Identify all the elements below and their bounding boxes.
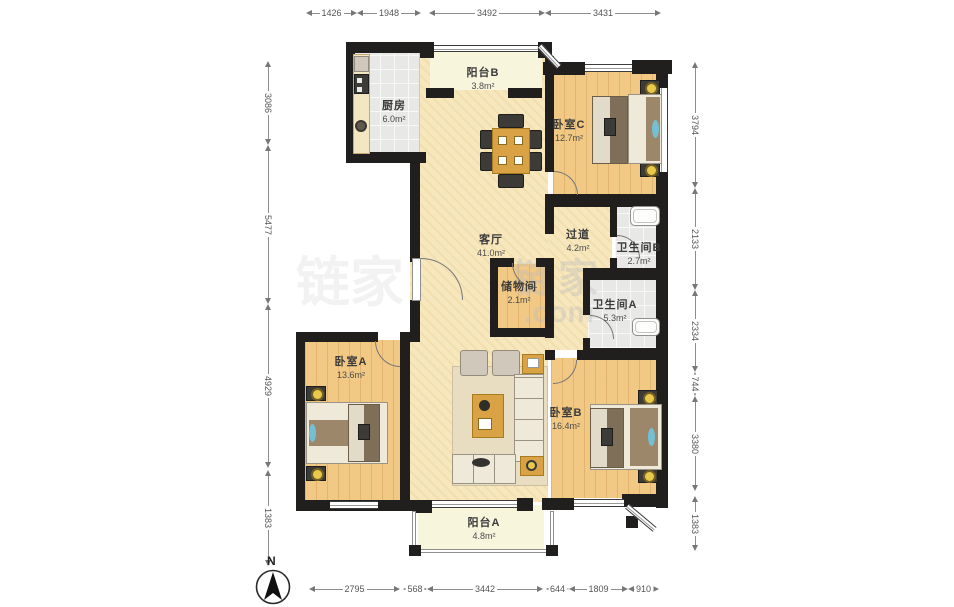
dimension-segment: 3431 [545, 8, 661, 18]
dimension-segment: 3086 [263, 61, 273, 145]
dimension-value: 3086 [263, 91, 273, 115]
dimension-value: 3442 [473, 584, 497, 594]
dimension-value: 3431 [591, 8, 615, 18]
dimension-value: 644 [548, 584, 567, 594]
dimension-value: 1809 [586, 584, 610, 594]
dimension-segment: 910 [628, 584, 659, 594]
dimension-segment: 5477 [263, 145, 273, 304]
dimension-segment: 1809 [569, 584, 628, 594]
dimensions-layer: 1426194834923431279556834426441809910308… [0, 0, 954, 607]
dimension-value: 3380 [690, 431, 700, 455]
dimension-segment: 1948 [357, 8, 421, 18]
dimension-value: 1948 [377, 8, 401, 18]
dimension-segment: 3380 [690, 396, 700, 491]
dimension-segment: 2795 [309, 584, 400, 594]
dimension-value: 2795 [342, 584, 366, 594]
dimension-segment: 1383 [263, 470, 273, 566]
dimension-value: 4929 [263, 374, 273, 398]
dimension-value: 2133 [690, 227, 700, 251]
dimension-segment: 3794 [690, 62, 700, 188]
dimension-value: 744 [690, 374, 700, 393]
dimension-segment: 4929 [263, 304, 273, 468]
dimension-segment: 3492 [429, 8, 545, 18]
dimension-value: 910 [634, 584, 653, 594]
dimension-value: 568 [405, 584, 424, 594]
dimension-segment: 1426 [306, 8, 357, 18]
dimension-segment: 744 [690, 372, 700, 396]
dimension-value: 1383 [690, 511, 700, 535]
dimension-value: 3794 [690, 113, 700, 137]
dimension-segment: 568 [403, 584, 427, 594]
dimension-value: 2334 [690, 319, 700, 343]
dimension-segment: 2133 [690, 188, 700, 290]
dimension-value: 5477 [263, 212, 273, 236]
dimension-segment: 1383 [690, 496, 700, 551]
dimension-value: 3492 [475, 8, 499, 18]
dimension-segment: 3442 [427, 584, 543, 594]
dimension-segment: 644 [546, 584, 569, 594]
dimension-value: 1383 [263, 506, 273, 530]
floor-plan-canvas: 链家 链家 .com [0, 0, 954, 607]
dimension-value: 1426 [319, 8, 343, 18]
north-arrow-icon [254, 568, 292, 606]
dimension-segment: 2334 [690, 290, 700, 372]
north-label: N [267, 554, 276, 568]
